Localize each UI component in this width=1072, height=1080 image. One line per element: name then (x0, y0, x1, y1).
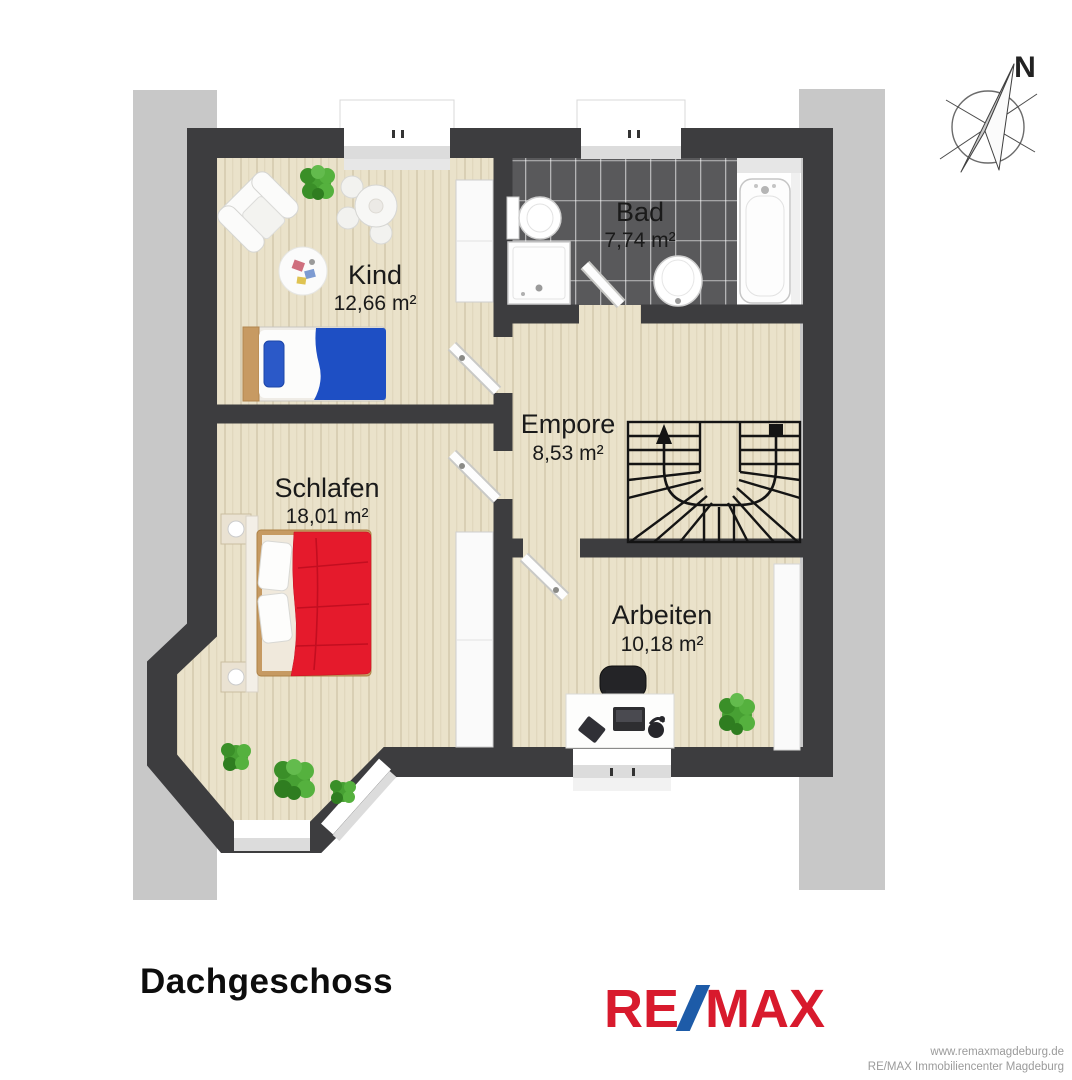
room-area-bad: 7,74 m² (604, 229, 675, 252)
logo-max: MAX (705, 979, 825, 1039)
logo-re: RE (604, 979, 679, 1039)
kind-plant (300, 165, 335, 200)
floorplan-page: Kind 12,66 m² Bad 7,74 m² Empore 8,53 m²… (0, 0, 1072, 1080)
room-area-empore: 8,53 m² (532, 442, 603, 465)
wardrobe-kind (456, 180, 493, 302)
wardrobe-arbeiten (774, 564, 800, 750)
room-area-kind: 12,66 m² (334, 292, 417, 315)
window-arbeiten-bottom (573, 749, 671, 791)
north-label: N (1014, 51, 1036, 84)
floor-title: Dachgeschoss (140, 962, 393, 1002)
footer-credits: www.remaxmagdeburg.de RE/MAX Immobilienc… (868, 1045, 1064, 1075)
dormer-kind (340, 100, 454, 130)
kind-play-rug (279, 247, 327, 295)
sink (654, 256, 702, 306)
room-area-arbeiten: 10,18 m² (621, 633, 704, 656)
footer-website: www.remaxmagdeburg.de (868, 1045, 1064, 1060)
desk-lamp (648, 722, 664, 738)
room-label-empore: Empore (521, 409, 616, 439)
floorplan-drawing: Kind 12,66 m² Bad 7,74 m² Empore 8,53 m²… (0, 0, 1072, 1080)
remax-logo: REMAX (604, 978, 825, 1040)
room-label-arbeiten: Arbeiten (612, 600, 713, 630)
room-label-bad: Bad (616, 197, 664, 227)
room-area-schlafen: 18,01 m² (286, 505, 369, 528)
room-label-kind: Kind (348, 260, 402, 290)
office-chair (600, 666, 646, 698)
shower (508, 242, 570, 304)
desk (566, 694, 674, 748)
window-bad-top (581, 128, 681, 159)
window-kind-top (344, 128, 450, 170)
window-bay-bottom (234, 820, 310, 851)
dormer-bad (577, 100, 685, 130)
toilet (507, 197, 561, 239)
wardrobe-schlafen (456, 532, 493, 747)
room-label-schlafen: Schlafen (274, 473, 379, 503)
stair-start-marker (769, 424, 783, 435)
compass-rose-icon: N (940, 51, 1037, 172)
kind-bed (243, 327, 386, 401)
bathtub (740, 179, 790, 303)
schlafen-double-bed (246, 516, 371, 692)
footer-company: RE/MAX Immobiliencenter Magdeburg (868, 1060, 1064, 1075)
